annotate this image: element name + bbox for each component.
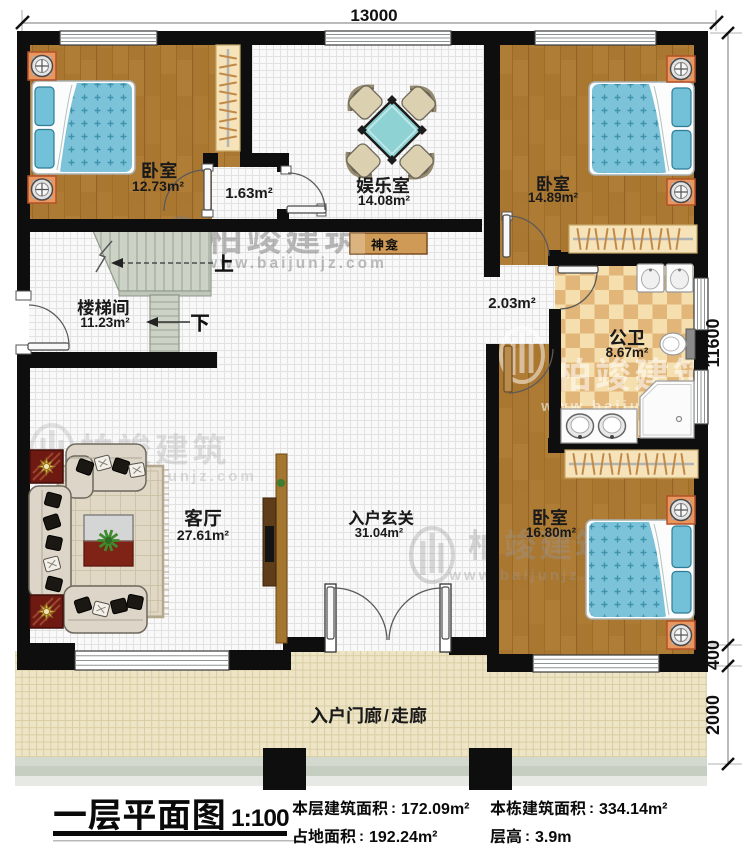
svg-text:31.04m²: 31.04m² xyxy=(355,525,404,540)
svg-text::: : xyxy=(525,828,530,845)
svg-text:16.80m²: 16.80m² xyxy=(526,525,577,540)
svg-text:/: / xyxy=(384,706,389,725)
svg-text::: : xyxy=(589,800,594,817)
svg-text:11.23m²: 11.23m² xyxy=(80,315,130,330)
svg-text:12.73m²: 12.73m² xyxy=(132,178,184,194)
svg-text:8.67m²: 8.67m² xyxy=(606,345,649,360)
svg-text:2000: 2000 xyxy=(703,695,723,735)
svg-text:1.63m²: 1.63m² xyxy=(225,185,273,202)
svg-text:3.9m: 3.9m xyxy=(535,829,571,846)
svg-text:334.14m²: 334.14m² xyxy=(599,801,668,818)
svg-text:11600: 11600 xyxy=(703,318,723,367)
svg-text::: : xyxy=(359,828,364,845)
svg-text:14.08m²: 14.08m² xyxy=(358,192,410,208)
svg-text:172.09m²: 172.09m² xyxy=(401,801,470,818)
svg-text:2.03m²: 2.03m² xyxy=(488,295,536,312)
svg-text:27.61m²: 27.61m² xyxy=(177,527,229,543)
svg-text:14.89m²: 14.89m² xyxy=(528,190,579,205)
svg-text:400: 400 xyxy=(703,640,723,670)
svg-text:13000: 13000 xyxy=(350,6,397,25)
svg-text::: : xyxy=(391,800,396,817)
svg-text:1:100: 1:100 xyxy=(231,805,289,832)
svg-text:192.24m²: 192.24m² xyxy=(369,829,438,846)
